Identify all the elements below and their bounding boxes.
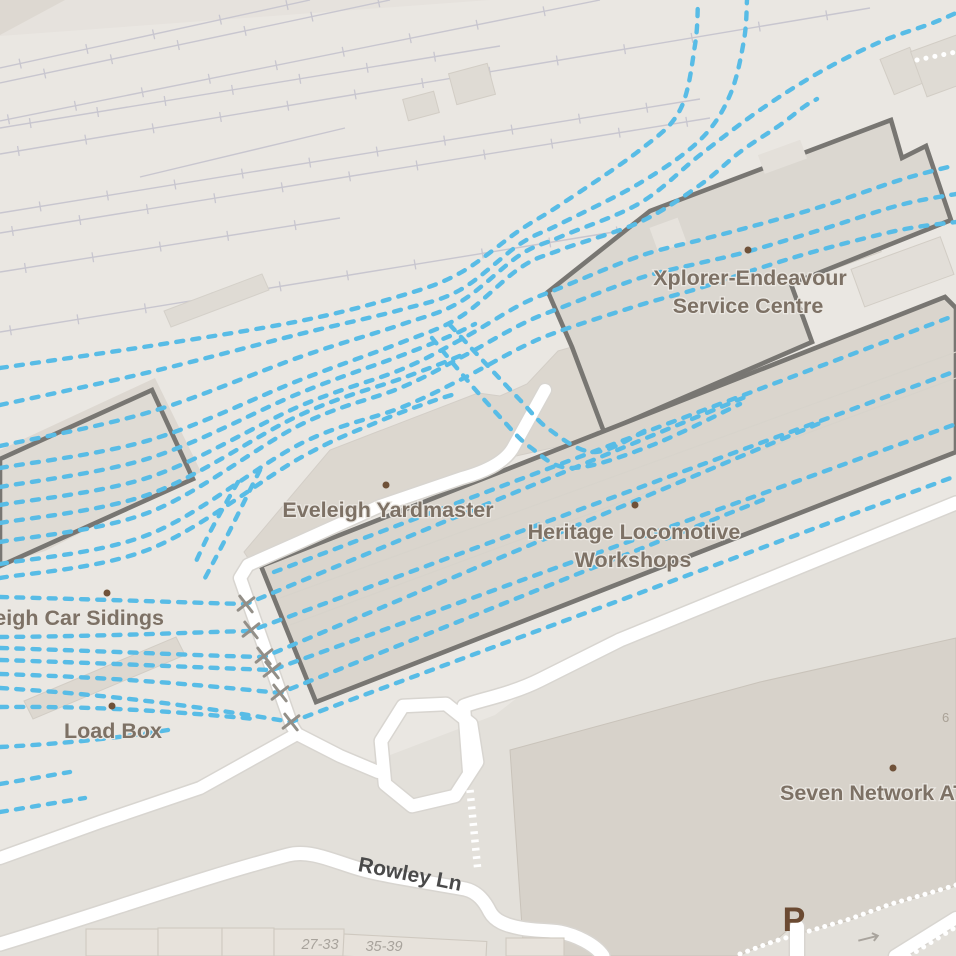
svg-text:Eveleigh Car Sidings: Eveleigh Car Sidings [0,606,164,630]
svg-text:Xplorer-Endeavour: Xplorer-Endeavour [653,266,847,290]
svg-text:27-33: 27-33 [300,937,338,953]
svg-text:35-39: 35-39 [365,939,402,955]
svg-text:P: P [783,901,806,939]
svg-text:6: 6 [942,710,949,725]
svg-text:Heritage Locomotive: Heritage Locomotive [528,520,741,544]
svg-text:Load Box: Load Box [64,719,162,743]
svg-text:Seven Network ATN: Seven Network ATN [780,781,956,805]
svg-text:Workshops: Workshops [575,548,692,572]
svg-text:Eveleigh Yardmaster: Eveleigh Yardmaster [282,498,494,522]
svg-text:Service Centre: Service Centre [673,294,824,318]
